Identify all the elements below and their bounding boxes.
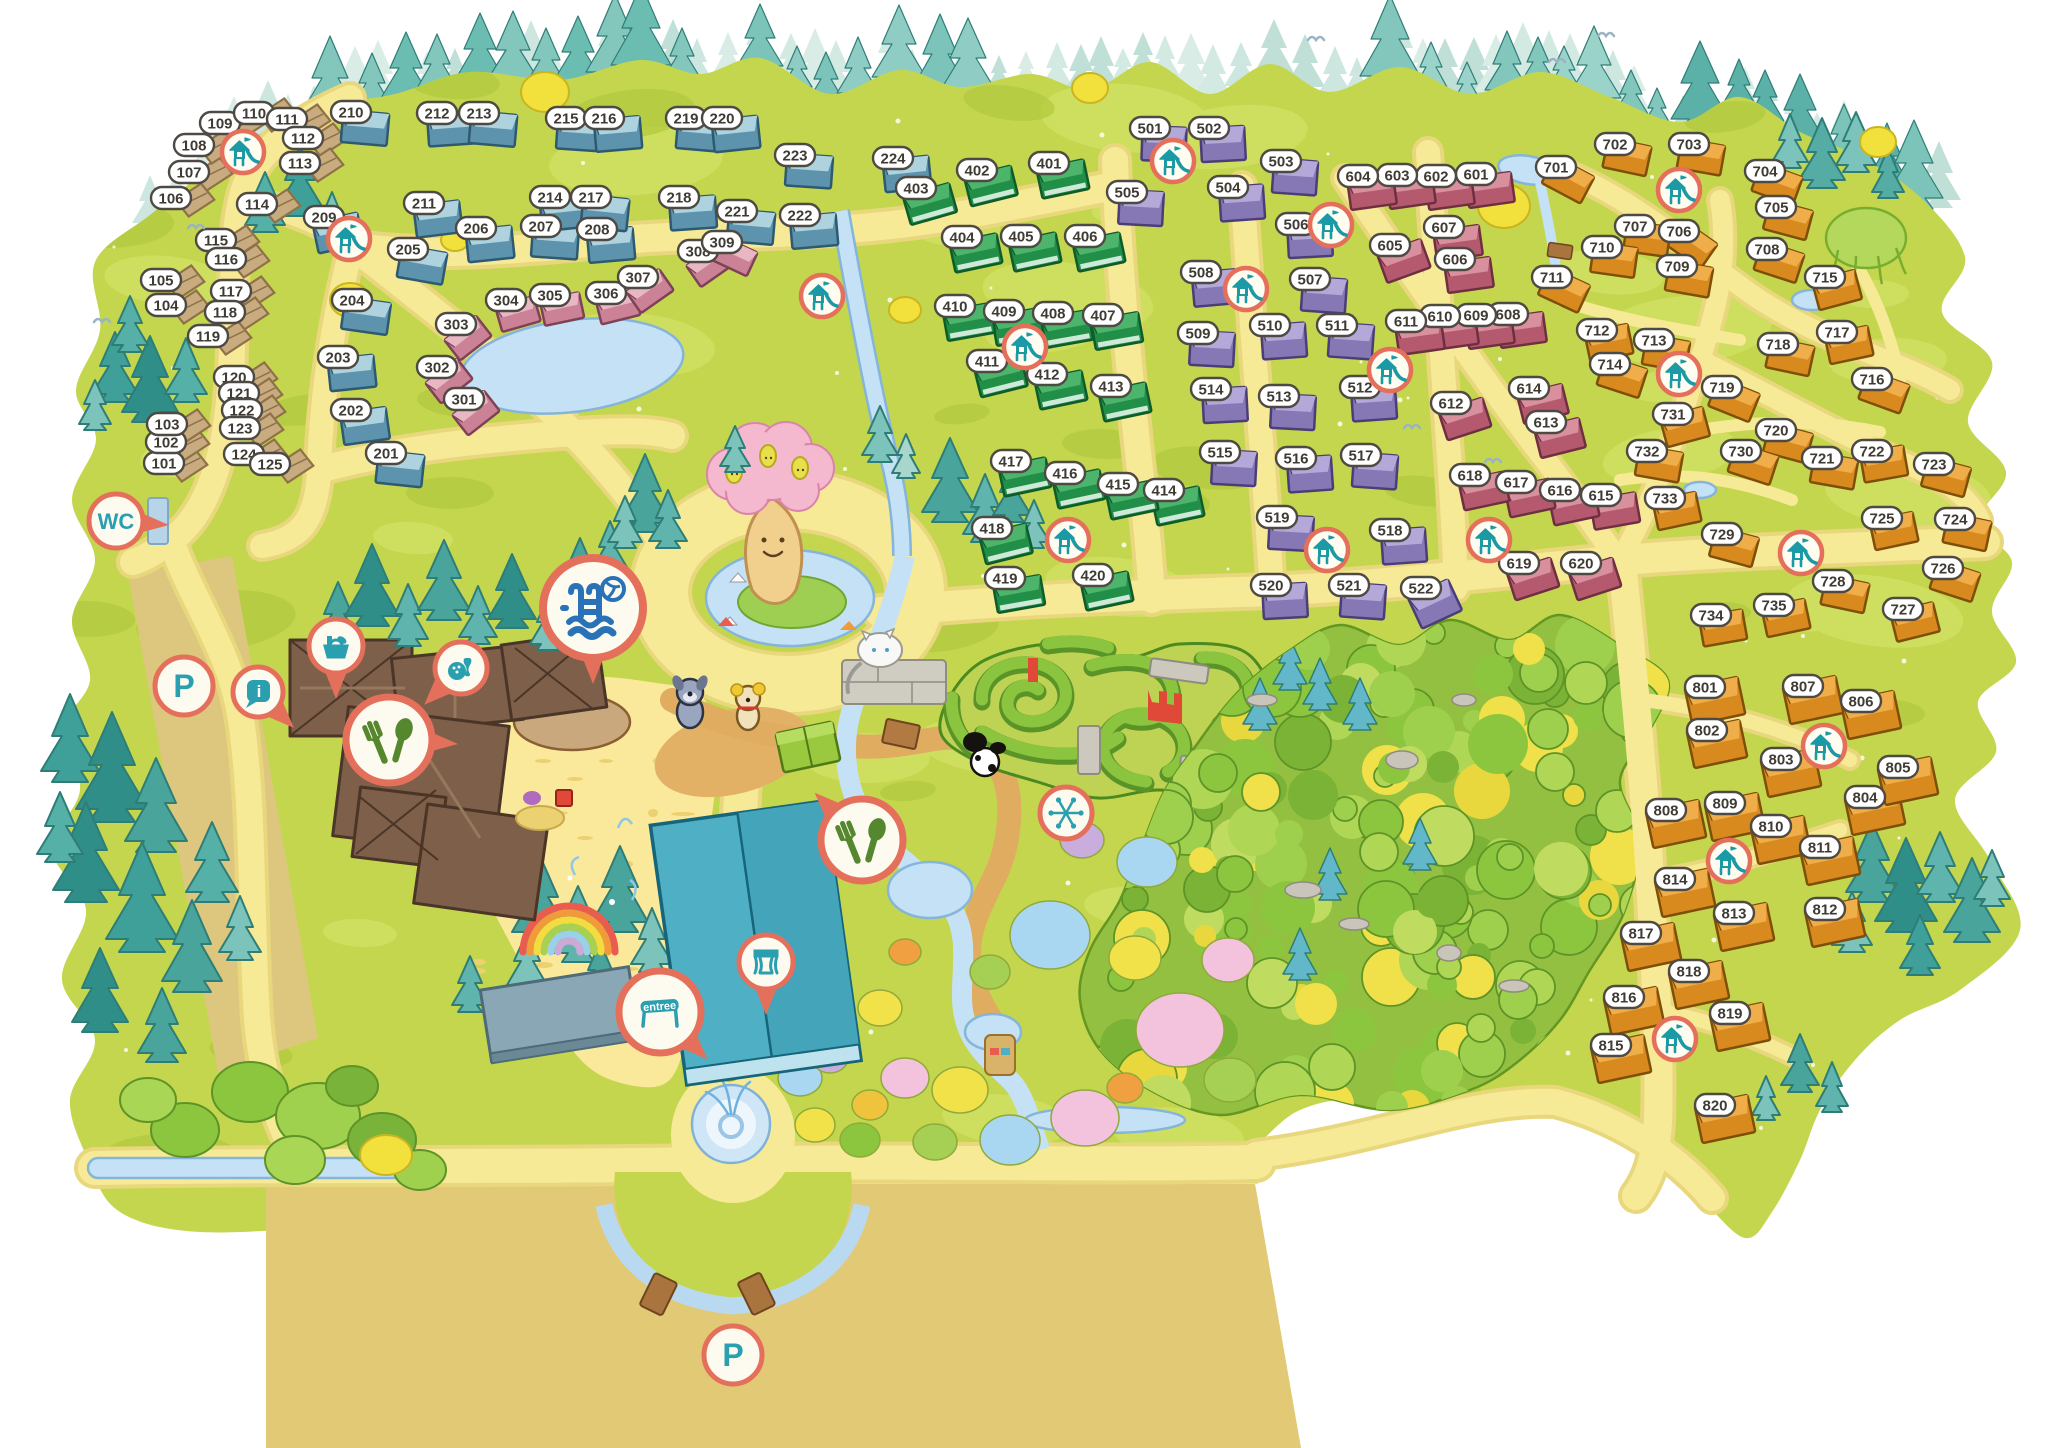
- svg-text:entree: entree: [643, 1000, 677, 1014]
- svg-text:615: 615: [1588, 488, 1613, 505]
- svg-text:729: 729: [1709, 527, 1734, 544]
- svg-text:704: 704: [1752, 164, 1778, 181]
- svg-text:507: 507: [1297, 272, 1322, 289]
- svg-text:221: 221: [724, 204, 749, 221]
- svg-text:208: 208: [584, 222, 609, 239]
- svg-text:418: 418: [979, 521, 1004, 538]
- svg-text:414: 414: [1151, 483, 1177, 500]
- svg-text:302: 302: [424, 360, 449, 377]
- svg-text:715: 715: [1812, 270, 1837, 287]
- svg-text:812: 812: [1812, 902, 1837, 919]
- svg-text:710: 710: [1589, 240, 1614, 257]
- svg-text:412: 412: [1034, 367, 1059, 384]
- svg-text:217: 217: [578, 190, 603, 207]
- svg-text:417: 417: [998, 454, 1023, 471]
- svg-text:P: P: [173, 668, 194, 704]
- svg-text:521: 521: [1336, 578, 1361, 595]
- svg-text:420: 420: [1080, 568, 1105, 585]
- svg-text:307: 307: [625, 270, 650, 287]
- svg-text:818: 818: [1676, 964, 1701, 981]
- svg-text:222: 222: [787, 208, 812, 225]
- svg-text:734: 734: [1698, 608, 1724, 625]
- svg-text:610: 610: [1427, 309, 1452, 326]
- svg-text:801: 801: [1692, 680, 1717, 697]
- svg-text:720: 720: [1763, 423, 1788, 440]
- svg-text:817: 817: [1628, 926, 1653, 943]
- svg-text:106: 106: [158, 191, 183, 208]
- svg-text:602: 602: [1423, 169, 1448, 186]
- svg-text:416: 416: [1052, 466, 1077, 483]
- svg-text:i: i: [257, 682, 262, 701]
- svg-text:215: 215: [553, 111, 578, 128]
- svg-text:219: 219: [673, 111, 698, 128]
- svg-text:813: 813: [1721, 906, 1746, 923]
- svg-text:721: 721: [1809, 451, 1834, 468]
- svg-text:516: 516: [1283, 451, 1308, 468]
- svg-text:218: 218: [666, 190, 691, 207]
- svg-text:419: 419: [992, 571, 1017, 588]
- svg-text:809: 809: [1712, 796, 1737, 813]
- svg-text:113: 113: [288, 156, 312, 173]
- svg-text:505: 505: [1114, 185, 1139, 202]
- svg-text:733: 733: [1652, 491, 1677, 508]
- svg-text:102: 102: [153, 435, 178, 452]
- svg-text:214: 214: [537, 190, 563, 207]
- svg-text:WC: WC: [98, 509, 135, 534]
- svg-text:717: 717: [1824, 325, 1849, 342]
- svg-text:119: 119: [196, 329, 220, 346]
- svg-text:511: 511: [1325, 318, 1349, 335]
- svg-text:216: 216: [591, 111, 616, 128]
- svg-text:702: 702: [1602, 137, 1627, 154]
- svg-text:211: 211: [412, 196, 436, 213]
- svg-text:508: 508: [1188, 265, 1213, 282]
- svg-text:814: 814: [1662, 872, 1688, 889]
- svg-text:808: 808: [1653, 803, 1678, 820]
- svg-text:220: 220: [709, 111, 734, 128]
- svg-text:309: 309: [709, 235, 734, 252]
- svg-text:P: P: [722, 1337, 743, 1373]
- svg-text:206: 206: [463, 221, 488, 238]
- svg-text:716: 716: [1859, 372, 1884, 389]
- svg-text:614: 614: [1516, 381, 1542, 398]
- svg-text:518: 518: [1377, 523, 1402, 540]
- svg-text:404: 404: [949, 230, 975, 247]
- svg-text:713: 713: [1641, 333, 1666, 350]
- svg-text:405: 405: [1008, 229, 1033, 246]
- svg-text:617: 617: [1503, 475, 1528, 492]
- svg-text:118: 118: [213, 305, 237, 322]
- svg-text:620: 620: [1568, 556, 1593, 573]
- svg-text:803: 803: [1768, 752, 1793, 769]
- svg-text:123: 123: [227, 421, 252, 438]
- svg-text:509: 509: [1185, 326, 1210, 343]
- svg-text:714: 714: [1597, 357, 1623, 374]
- svg-text:204: 204: [339, 293, 365, 310]
- svg-text:707: 707: [1622, 219, 1647, 236]
- svg-text:410: 410: [942, 299, 967, 316]
- svg-text:301: 301: [451, 392, 476, 409]
- svg-text:608: 608: [1495, 307, 1520, 324]
- svg-text:303: 303: [443, 317, 468, 334]
- svg-text:402: 402: [964, 163, 989, 180]
- svg-text:607: 607: [1431, 220, 1456, 237]
- svg-text:727: 727: [1890, 602, 1915, 619]
- svg-text:722: 722: [1859, 444, 1884, 461]
- svg-text:108: 108: [181, 138, 206, 155]
- svg-text:728: 728: [1820, 574, 1845, 591]
- svg-text:506: 506: [1283, 217, 1308, 234]
- svg-text:819: 819: [1717, 1006, 1742, 1023]
- svg-text:711: 711: [1540, 270, 1564, 287]
- svg-text:811: 811: [1808, 840, 1832, 857]
- svg-text:606: 606: [1442, 252, 1467, 269]
- svg-text:407: 407: [1090, 308, 1115, 325]
- svg-text:712: 712: [1584, 323, 1609, 340]
- svg-text:816: 816: [1611, 990, 1636, 1007]
- svg-text:726: 726: [1930, 561, 1955, 578]
- svg-text:201: 201: [373, 446, 398, 463]
- svg-text:513: 513: [1266, 389, 1291, 406]
- svg-text:202: 202: [338, 403, 363, 420]
- svg-text:504: 504: [1215, 180, 1241, 197]
- svg-text:618: 618: [1457, 468, 1482, 485]
- svg-text:806: 806: [1848, 694, 1873, 711]
- svg-text:104: 104: [153, 298, 179, 315]
- svg-text:105: 105: [148, 273, 173, 290]
- svg-text:719: 719: [1709, 380, 1734, 397]
- svg-text:515: 515: [1207, 445, 1232, 462]
- svg-text:101: 101: [151, 456, 176, 473]
- svg-text:612: 612: [1438, 396, 1463, 413]
- svg-text:730: 730: [1728, 444, 1753, 461]
- svg-text:604: 604: [1345, 169, 1371, 186]
- svg-text:213: 213: [466, 106, 491, 123]
- svg-text:519: 519: [1264, 510, 1289, 527]
- svg-text:701: 701: [1543, 160, 1568, 177]
- svg-text:403: 403: [903, 181, 928, 198]
- svg-text:705: 705: [1763, 200, 1788, 217]
- svg-text:107: 107: [176, 165, 201, 182]
- svg-text:117: 117: [219, 284, 243, 301]
- svg-text:605: 605: [1377, 238, 1402, 255]
- svg-text:609: 609: [1463, 308, 1488, 325]
- svg-text:510: 510: [1257, 318, 1282, 335]
- svg-text:724: 724: [1942, 512, 1968, 529]
- svg-text:718: 718: [1765, 337, 1790, 354]
- svg-text:408: 408: [1040, 306, 1065, 323]
- svg-text:520: 520: [1258, 578, 1283, 595]
- svg-text:304: 304: [493, 293, 519, 310]
- svg-text:401: 401: [1036, 156, 1061, 173]
- svg-text:116: 116: [214, 252, 238, 269]
- svg-text:708: 708: [1754, 242, 1779, 259]
- svg-text:210: 210: [338, 105, 363, 122]
- svg-text:103: 103: [154, 417, 179, 434]
- svg-text:223: 223: [782, 148, 807, 165]
- svg-text:805: 805: [1885, 760, 1910, 777]
- svg-text:725: 725: [1869, 511, 1894, 528]
- svg-text:735: 735: [1761, 598, 1786, 615]
- svg-text:804: 804: [1852, 790, 1878, 807]
- svg-text:112: 112: [291, 131, 315, 148]
- svg-text:406: 406: [1072, 229, 1097, 246]
- svg-text:503: 503: [1268, 154, 1293, 171]
- svg-text:619: 619: [1506, 556, 1531, 573]
- svg-text:109: 109: [207, 116, 232, 133]
- svg-text:611: 611: [1394, 314, 1418, 331]
- svg-text:522: 522: [1408, 581, 1433, 598]
- svg-text:305: 305: [537, 288, 562, 305]
- svg-text:411: 411: [975, 354, 999, 371]
- svg-text:512: 512: [1347, 380, 1372, 397]
- svg-text:810: 810: [1758, 819, 1783, 836]
- svg-text:616: 616: [1547, 483, 1572, 500]
- svg-text:709: 709: [1664, 259, 1689, 276]
- svg-text:114: 114: [245, 197, 270, 214]
- svg-text:415: 415: [1105, 477, 1130, 494]
- svg-text:205: 205: [395, 242, 420, 259]
- svg-text:802: 802: [1694, 723, 1719, 740]
- svg-text:732: 732: [1634, 444, 1659, 461]
- svg-text:306: 306: [593, 286, 618, 303]
- svg-text:514: 514: [1198, 382, 1224, 399]
- svg-text:207: 207: [528, 219, 553, 236]
- svg-text:603: 603: [1384, 168, 1409, 185]
- svg-text:409: 409: [991, 304, 1016, 321]
- svg-text:413: 413: [1098, 379, 1123, 396]
- svg-text:212: 212: [424, 106, 449, 123]
- svg-text:502: 502: [1196, 121, 1221, 138]
- svg-text:517: 517: [1348, 448, 1373, 465]
- svg-text:703: 703: [1676, 137, 1701, 154]
- svg-text:203: 203: [325, 350, 350, 367]
- svg-text:706: 706: [1666, 224, 1691, 241]
- svg-text:601: 601: [1463, 167, 1488, 184]
- svg-text:110: 110: [242, 106, 266, 123]
- svg-text:723: 723: [1921, 457, 1946, 474]
- svg-text:815: 815: [1598, 1038, 1623, 1055]
- svg-text:501: 501: [1137, 121, 1162, 138]
- svg-text:125: 125: [257, 457, 282, 474]
- svg-text:820: 820: [1702, 1098, 1727, 1115]
- svg-text:731: 731: [1660, 407, 1685, 424]
- svg-text:224: 224: [880, 151, 906, 168]
- svg-text:613: 613: [1533, 415, 1558, 432]
- svg-text:807: 807: [1790, 679, 1815, 696]
